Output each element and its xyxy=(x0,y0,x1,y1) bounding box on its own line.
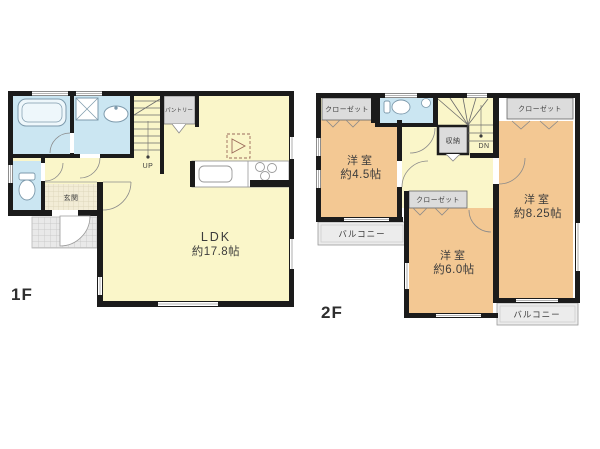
room45-size: 約4.5帖 xyxy=(340,167,382,181)
stairs-dn-label: DN xyxy=(478,143,489,150)
room825-label: 洋室 xyxy=(524,192,552,206)
closet-top-right-label: クローゼット xyxy=(518,104,562,113)
balcony-left-label: バルコニー xyxy=(338,229,385,239)
room60-floor xyxy=(409,208,493,318)
toilet-icon xyxy=(19,173,35,200)
stairs-1f xyxy=(134,99,160,159)
corner-sink-icon xyxy=(422,99,431,108)
genkan-label: 玄関 xyxy=(64,193,79,202)
balcony-bottom-label: バルコニー xyxy=(513,310,560,320)
floor2-label: 2F xyxy=(321,303,343,323)
floorplan-2f: 洋室 約4.5帖 洋室 約8.25帖 洋室 約6.0帖 クローゼット クローゼッ… xyxy=(316,93,580,330)
washbasin-icon xyxy=(104,106,128,122)
room45-label: 洋室 xyxy=(347,153,375,167)
pantry-label: パントリー xyxy=(165,107,193,114)
room60-size: 約6.0帖 xyxy=(433,262,475,276)
floorplan-canvas: LDK 約17.8帖 玄関 パントリー UP xyxy=(0,0,600,449)
room825-size: 約8.25帖 xyxy=(514,206,562,220)
floor1-label: 1F xyxy=(11,285,33,305)
kitchen-counter xyxy=(190,161,289,187)
storage-label: 収納 xyxy=(446,136,461,145)
ldk-size: 約17.8帖 xyxy=(192,244,240,258)
closet-middle-label: クローゼット xyxy=(416,195,460,204)
kitchen-sink-icon xyxy=(199,166,232,182)
room60-label: 洋室 xyxy=(440,248,468,262)
floorplan-1f: LDK 約17.8帖 玄関 パントリー UP xyxy=(8,91,295,307)
ldk-label: LDK xyxy=(201,230,231,244)
closet-top-left-label: クローゼット xyxy=(325,105,369,114)
stairs-up-label: UP xyxy=(143,163,154,170)
bathtub-icon xyxy=(18,99,66,126)
washing-machine-icon xyxy=(76,98,98,120)
